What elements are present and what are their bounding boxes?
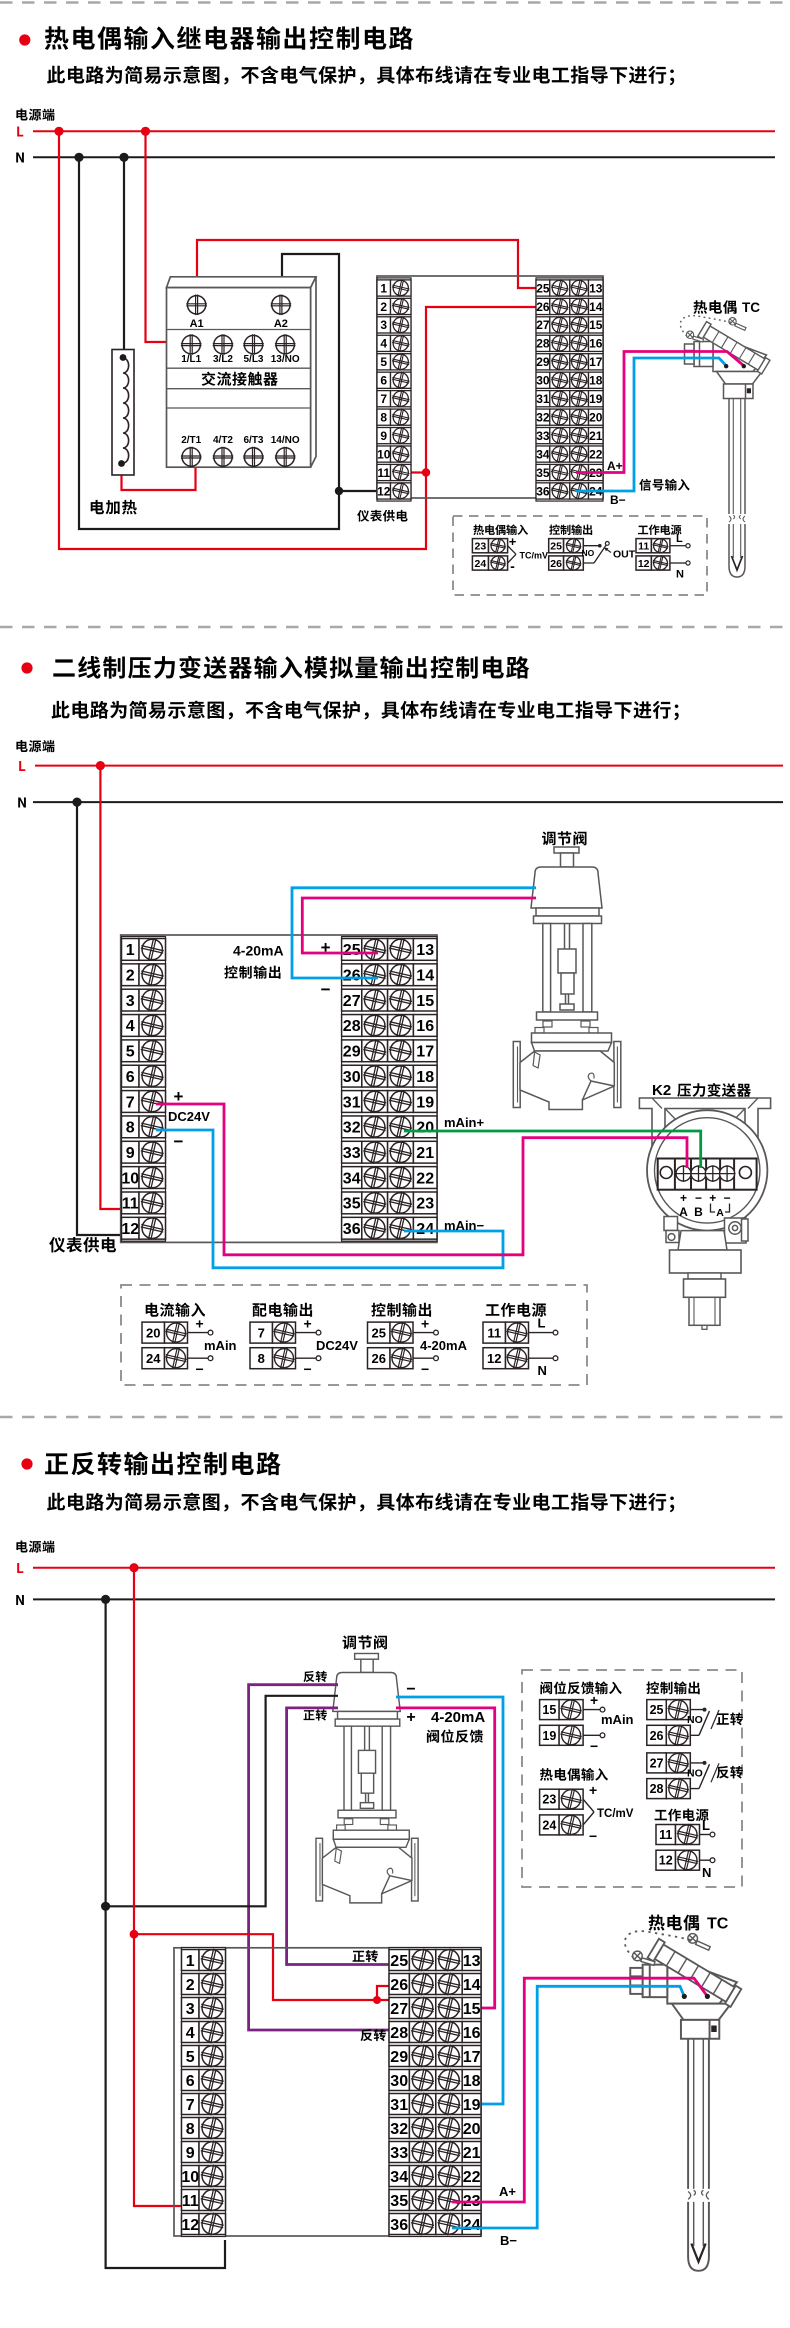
svg-text:−: −: [196, 1361, 204, 1377]
svg-text:2: 2: [380, 300, 387, 314]
svg-text:8: 8: [258, 1351, 265, 1366]
svg-text:mAin−: mAin−: [444, 1218, 485, 1233]
svg-text:5/L3: 5/L3: [243, 354, 263, 365]
svg-text:27: 27: [343, 993, 361, 1010]
svg-text:5: 5: [126, 1044, 135, 1061]
svg-text:36: 36: [390, 2217, 408, 2234]
svg-text:12: 12: [121, 1221, 139, 1238]
svg-text:7: 7: [126, 1094, 135, 1111]
svg-text:26: 26: [550, 558, 562, 570]
svg-text:1: 1: [186, 1953, 195, 1970]
svg-text:NO: NO: [687, 1714, 703, 1726]
svg-text:11: 11: [487, 1325, 501, 1340]
svg-text:19: 19: [416, 1094, 434, 1111]
svg-text:5: 5: [380, 355, 387, 369]
svg-text:3: 3: [380, 318, 387, 332]
svg-text:27: 27: [650, 1756, 664, 1770]
svg-text:NO: NO: [582, 548, 595, 558]
svg-text:20: 20: [589, 410, 603, 424]
svg-text:32: 32: [343, 1120, 361, 1137]
svg-text:28: 28: [390, 2025, 408, 2042]
svg-text:26: 26: [536, 300, 550, 314]
svg-text:23: 23: [416, 1196, 434, 1213]
svg-text:A+: A+: [499, 2184, 516, 2199]
svg-text:7: 7: [380, 392, 387, 406]
svg-text:+: +: [421, 1316, 429, 1332]
svg-text:34: 34: [536, 447, 550, 461]
svg-text:27: 27: [390, 2001, 408, 2018]
svg-text:L: L: [676, 533, 683, 545]
svg-text:18: 18: [589, 374, 603, 388]
svg-text:11: 11: [182, 2193, 199, 2210]
svg-text:17: 17: [589, 355, 603, 369]
svg-text:4-20mA: 4-20mA: [233, 943, 284, 959]
svg-text:L: L: [702, 1818, 710, 1833]
svg-text:34: 34: [343, 1170, 361, 1187]
svg-text:12: 12: [181, 2217, 199, 2234]
svg-text:21: 21: [416, 1145, 434, 1162]
svg-text:26: 26: [372, 1351, 386, 1366]
svg-text:18: 18: [463, 2073, 481, 2090]
svg-text:25: 25: [390, 1953, 408, 1970]
svg-text:−: −: [724, 1191, 731, 1205]
svg-text:B−: B−: [500, 2233, 517, 2248]
svg-text:12: 12: [487, 1351, 501, 1366]
svg-text:29: 29: [390, 2049, 408, 2066]
svg-text:9: 9: [380, 429, 387, 443]
svg-text:8: 8: [380, 410, 387, 424]
svg-text:TC: TC: [707, 1916, 729, 1933]
svg-text:20: 20: [416, 1120, 434, 1137]
svg-text:6: 6: [186, 2073, 195, 2090]
svg-text:A: A: [716, 1207, 724, 1219]
svg-text:8: 8: [126, 1120, 135, 1137]
svg-text:−: −: [589, 1828, 597, 1844]
svg-text:K2: K2: [652, 1082, 671, 1099]
svg-text:+: +: [304, 1316, 312, 1332]
svg-text:16: 16: [416, 1018, 434, 1035]
svg-text:1/L1: 1/L1: [181, 354, 201, 365]
svg-text:−: −: [174, 1132, 184, 1151]
svg-text:2: 2: [126, 968, 135, 985]
svg-text:24: 24: [416, 1221, 434, 1238]
svg-text:TC/mV: TC/mV: [597, 1808, 634, 1820]
svg-text:6/T3: 6/T3: [243, 435, 263, 446]
svg-text:17: 17: [416, 1044, 434, 1061]
svg-text:22: 22: [589, 447, 603, 461]
svg-text:mAin+: mAin+: [444, 1115, 485, 1130]
svg-text:1: 1: [380, 281, 387, 295]
svg-text:32: 32: [536, 410, 550, 424]
svg-text:+: +: [196, 1316, 204, 1332]
svg-text:11: 11: [377, 466, 390, 480]
svg-text:N: N: [538, 1363, 547, 1378]
svg-text:13: 13: [463, 1953, 481, 1970]
svg-text:mAin: mAin: [601, 1712, 634, 1727]
svg-text:14: 14: [416, 968, 434, 985]
svg-text:5: 5: [186, 2049, 195, 2066]
svg-text:15: 15: [416, 993, 434, 1010]
svg-text:DC24V: DC24V: [168, 1109, 210, 1124]
svg-text:9: 9: [126, 1145, 135, 1162]
svg-text:24: 24: [542, 1818, 556, 1832]
svg-text:−: −: [695, 1191, 702, 1205]
svg-text:31: 31: [536, 392, 550, 406]
svg-text:20: 20: [146, 1325, 160, 1340]
svg-text:3/L2: 3/L2: [213, 354, 233, 365]
svg-text:−: −: [321, 980, 331, 999]
svg-text:30: 30: [390, 2073, 408, 2090]
svg-text:6: 6: [380, 374, 387, 388]
svg-text:11: 11: [122, 1196, 139, 1213]
svg-text:mAin: mAin: [204, 1338, 237, 1353]
svg-text:25: 25: [343, 942, 361, 959]
svg-text:35: 35: [536, 466, 550, 480]
svg-text:17: 17: [463, 2049, 481, 2066]
svg-text:32: 32: [390, 2121, 408, 2138]
svg-text:10: 10: [121, 1170, 139, 1187]
svg-text:12: 12: [638, 558, 650, 570]
svg-text:33: 33: [390, 2145, 408, 2162]
svg-text:12: 12: [659, 1854, 673, 1868]
svg-text:36: 36: [536, 484, 550, 498]
svg-text:18: 18: [416, 1069, 434, 1086]
svg-text:31: 31: [390, 2097, 408, 2114]
svg-text:9: 9: [186, 2145, 195, 2162]
svg-text:29: 29: [343, 1044, 361, 1061]
svg-text:26: 26: [650, 1729, 664, 1743]
svg-text:4: 4: [186, 2025, 195, 2042]
svg-text:13/NO: 13/NO: [271, 354, 300, 365]
svg-text:14: 14: [463, 1977, 481, 1994]
svg-text:15: 15: [589, 318, 603, 332]
svg-text:14/NO: 14/NO: [271, 435, 300, 446]
svg-text:21: 21: [589, 429, 603, 443]
svg-text:+: +: [589, 1782, 597, 1798]
svg-text:34: 34: [390, 2169, 408, 2186]
svg-text:A2: A2: [274, 318, 288, 330]
svg-text:31: 31: [343, 1094, 361, 1111]
svg-text:NO: NO: [687, 1768, 703, 1780]
svg-text:3: 3: [186, 2001, 195, 2018]
svg-text:21: 21: [463, 2145, 481, 2162]
svg-text:TC/mV: TC/mV: [520, 551, 549, 561]
svg-text:22: 22: [416, 1170, 434, 1187]
svg-text:28: 28: [650, 1782, 664, 1796]
svg-text:25: 25: [550, 541, 562, 553]
svg-text:11: 11: [638, 541, 649, 553]
svg-text:24: 24: [463, 2217, 481, 2234]
svg-text:22: 22: [463, 2169, 481, 2186]
svg-text:N: N: [676, 569, 684, 581]
svg-text:A1: A1: [190, 318, 204, 330]
svg-text:13: 13: [416, 942, 434, 959]
svg-text:23: 23: [475, 541, 487, 553]
svg-text:7: 7: [258, 1325, 265, 1340]
svg-text:+: +: [509, 534, 517, 549]
svg-text:B: B: [694, 1205, 703, 1219]
svg-text:19: 19: [542, 1729, 556, 1743]
svg-text:B−: B−: [610, 493, 626, 507]
svg-text:4/T2: 4/T2: [213, 435, 233, 446]
svg-text:35: 35: [343, 1196, 361, 1213]
svg-text:19: 19: [589, 392, 603, 406]
svg-text:7: 7: [186, 2097, 195, 2114]
svg-text:13: 13: [589, 281, 603, 295]
svg-text:−: −: [421, 1361, 429, 1377]
svg-text:30: 30: [343, 1069, 361, 1086]
svg-text:L: L: [538, 1316, 546, 1331]
svg-text:33: 33: [536, 429, 550, 443]
svg-text:4: 4: [126, 1018, 135, 1035]
svg-text:14: 14: [589, 300, 603, 314]
svg-text:A+: A+: [607, 459, 623, 473]
svg-text:30: 30: [536, 374, 550, 388]
svg-text:2/T1: 2/T1: [181, 435, 201, 446]
svg-text:19: 19: [463, 2097, 481, 2114]
svg-text:15: 15: [463, 2001, 481, 2018]
svg-text:4-20mA: 4-20mA: [420, 1338, 468, 1353]
svg-text:DC24V: DC24V: [316, 1338, 358, 1353]
svg-text:28: 28: [343, 1018, 361, 1035]
svg-text:TC: TC: [742, 300, 760, 315]
svg-text:15: 15: [542, 1703, 556, 1717]
svg-text:+: +: [406, 1709, 415, 1726]
svg-text:33: 33: [343, 1145, 361, 1162]
svg-text:26: 26: [390, 1977, 408, 1994]
svg-text:A: A: [679, 1205, 688, 1219]
svg-text:27: 27: [536, 318, 550, 332]
svg-text:N: N: [702, 1865, 711, 1880]
svg-text:1: 1: [126, 942, 135, 959]
svg-text:6: 6: [126, 1069, 135, 1086]
svg-text:10: 10: [377, 447, 391, 461]
svg-text:24: 24: [475, 558, 487, 570]
svg-text:−: −: [406, 1681, 415, 1698]
svg-text:4: 4: [380, 337, 387, 351]
svg-text:+: +: [680, 1191, 687, 1205]
svg-text:+: +: [709, 1191, 716, 1205]
svg-text:28: 28: [536, 337, 550, 351]
svg-text:+: +: [590, 1692, 598, 1708]
svg-text:12: 12: [377, 484, 391, 498]
svg-text:25: 25: [650, 1703, 664, 1717]
svg-text:OUT: OUT: [613, 549, 636, 561]
svg-text:36: 36: [343, 1221, 361, 1238]
svg-text:2: 2: [186, 1977, 195, 1994]
svg-text:16: 16: [589, 337, 603, 351]
svg-text:35: 35: [390, 2193, 408, 2210]
svg-text:4-20mA: 4-20mA: [431, 1709, 485, 1726]
svg-text:24: 24: [146, 1351, 161, 1366]
svg-text:16: 16: [463, 2025, 481, 2042]
svg-text:−: −: [590, 1738, 598, 1754]
svg-text:−: −: [304, 1361, 312, 1377]
svg-text:20: 20: [463, 2121, 481, 2138]
svg-text:25: 25: [372, 1325, 386, 1340]
svg-text:3: 3: [126, 993, 135, 1010]
svg-text:11: 11: [659, 1828, 672, 1842]
svg-text:8: 8: [186, 2121, 195, 2138]
svg-text:26: 26: [343, 968, 361, 985]
svg-text:25: 25: [536, 281, 550, 295]
svg-text:10: 10: [181, 2169, 199, 2186]
svg-text:29: 29: [536, 355, 550, 369]
svg-text:23: 23: [542, 1793, 556, 1807]
